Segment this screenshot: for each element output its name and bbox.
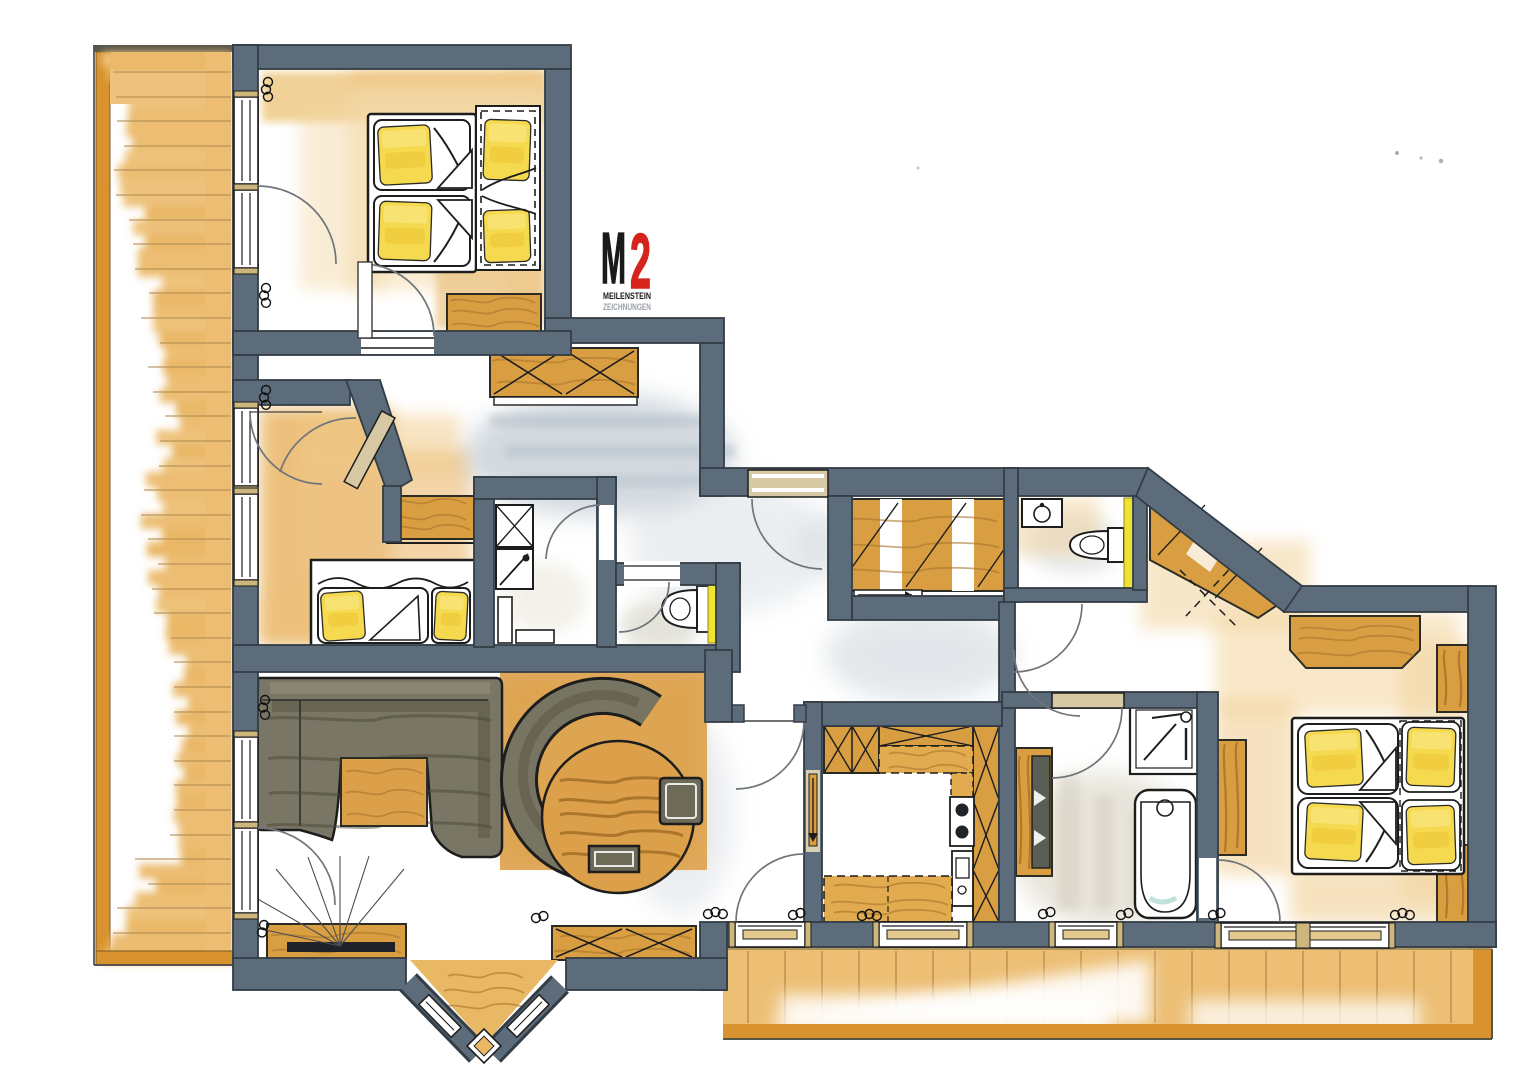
svg-text:ZEICHNUNGEN: ZEICHNUNGEN [603, 302, 651, 313]
svg-text:MEILENSTEIN: MEILENSTEIN [603, 291, 651, 302]
svg-text:M: M [601, 219, 626, 299]
